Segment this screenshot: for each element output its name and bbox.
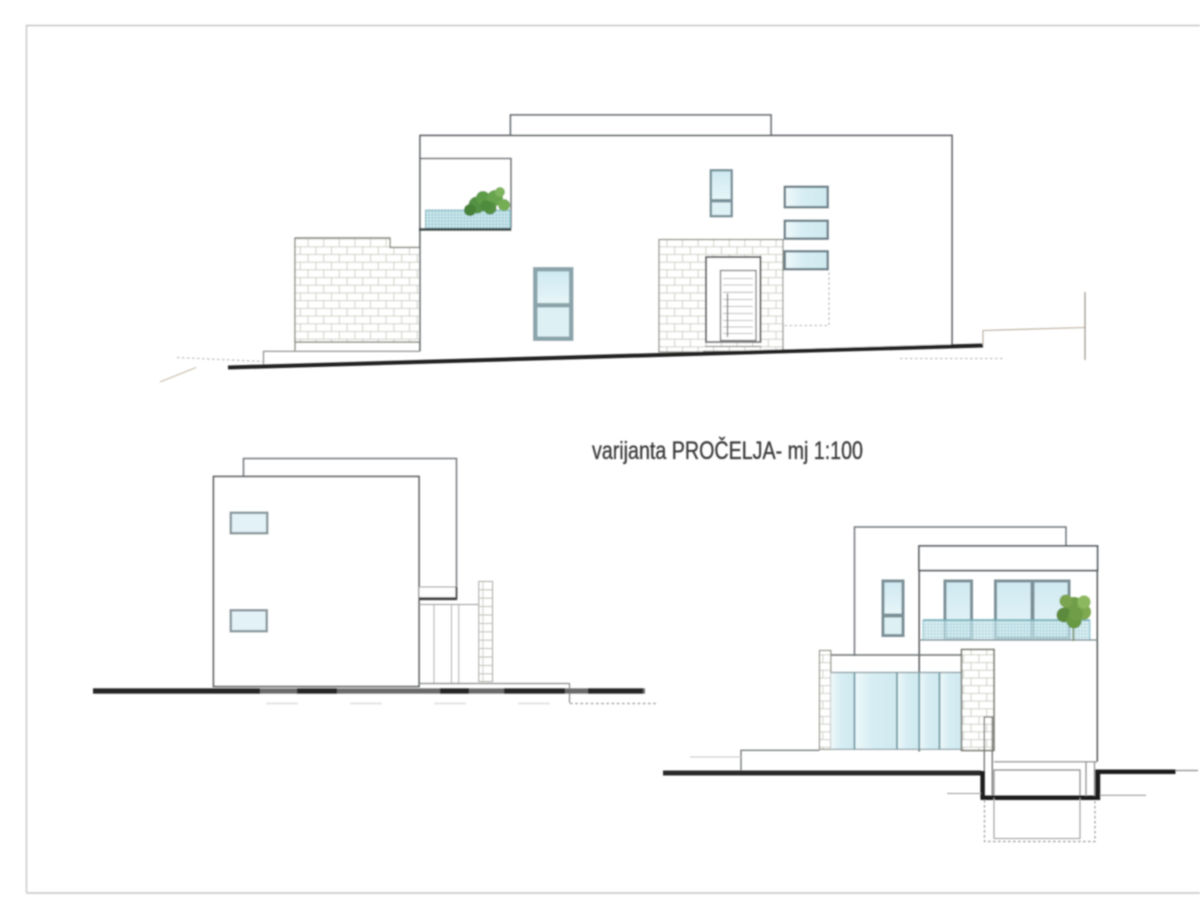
svg-text:varijanta PROČELJA- mj 1:100: varijanta PROČELJA- mj 1:100 (592, 436, 863, 465)
